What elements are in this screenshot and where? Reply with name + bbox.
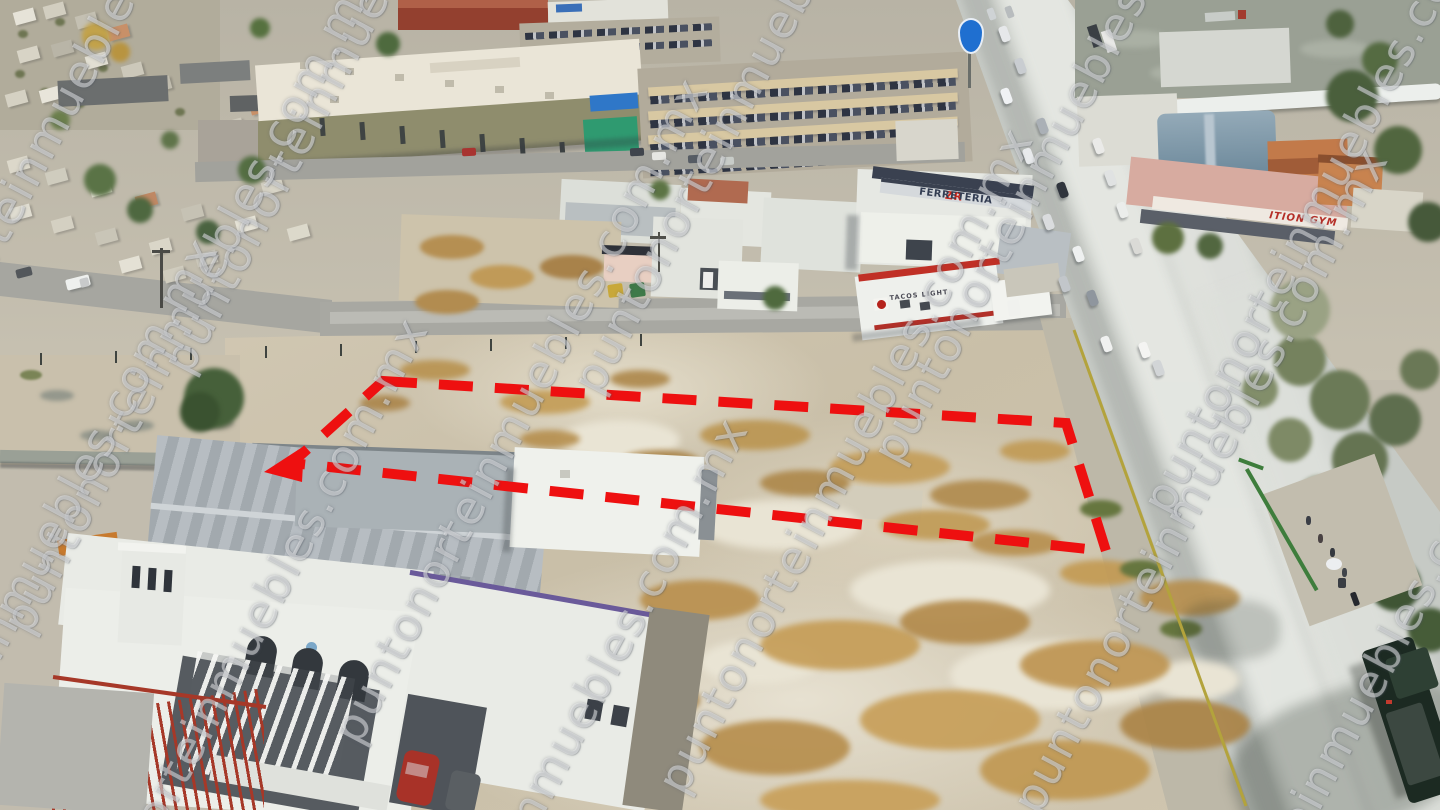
tree [84, 164, 116, 196]
roof-vent [495, 86, 504, 93]
fence-post [340, 344, 342, 356]
tree [763, 286, 787, 310]
road-sign-pole [968, 52, 971, 88]
window-dark [610, 705, 629, 727]
van-white [1007, 299, 1021, 317]
fence-post [490, 339, 492, 351]
weeds [1120, 560, 1162, 578]
rubble-pile [1300, 40, 1370, 58]
brush-patch [970, 530, 1060, 556]
building-shadow [845, 215, 859, 270]
tree [1362, 42, 1398, 78]
fence-post [115, 351, 117, 363]
brush-patch [1020, 640, 1170, 690]
car [720, 157, 734, 166]
tree [250, 18, 270, 38]
ferreteria-door [906, 240, 933, 261]
tree [376, 32, 400, 56]
tree [1152, 222, 1184, 254]
white-flat-building [510, 447, 705, 557]
brush-patch [930, 480, 1030, 510]
tree [1326, 70, 1378, 122]
steel-frame-roof [398, 0, 548, 8]
tower-window [147, 568, 156, 590]
fence-post [565, 337, 567, 349]
shrub [175, 108, 185, 116]
brush-patch [700, 420, 810, 450]
brush-patch [470, 265, 534, 289]
roof-vent [345, 68, 354, 75]
tower-window [131, 566, 140, 588]
house-tower [118, 546, 187, 645]
tree [1270, 280, 1330, 340]
concrete-yard [295, 448, 518, 534]
pole-crossarm [650, 236, 666, 239]
brush-patch [360, 395, 410, 411]
sand-patch [700, 500, 860, 550]
van-green [629, 282, 646, 298]
car [462, 148, 476, 157]
tree [1268, 418, 1312, 462]
umbrella-white [1326, 558, 1342, 570]
shed [895, 119, 958, 161]
tree [1408, 202, 1440, 242]
tree-shadow [1180, 600, 1280, 660]
brush-patch [610, 370, 670, 388]
tree [161, 131, 179, 149]
fence-post [40, 353, 42, 365]
tree [127, 197, 153, 223]
tower-window [163, 570, 172, 592]
fence-post [190, 348, 192, 360]
roof-vent [445, 80, 454, 87]
white-building [1159, 28, 1291, 88]
tree [1326, 10, 1354, 38]
warehouse-ridge [1204, 114, 1216, 172]
tree [50, 110, 70, 130]
brush-patch [1120, 700, 1250, 750]
rubble-pile [120, 420, 154, 431]
utility-pole [160, 248, 163, 308]
brush-patch [880, 510, 990, 540]
tree [1310, 370, 1370, 430]
brush-patch [415, 290, 479, 314]
car [688, 155, 702, 164]
tree [650, 180, 670, 200]
roof-vent [330, 96, 339, 103]
brush-patch [400, 360, 470, 380]
brush-patch [420, 235, 484, 259]
brush-patch [700, 720, 850, 775]
rubble-pile [80, 430, 114, 441]
tree [1369, 394, 1421, 446]
brush-patch [520, 430, 580, 448]
pedestrian [1330, 548, 1335, 557]
rubble-pile [40, 390, 74, 401]
tree [82, 22, 110, 50]
shrub [18, 30, 28, 38]
shrub [15, 70, 25, 78]
red-roof-building [687, 178, 748, 203]
tree [238, 156, 266, 184]
jeep-yellow [607, 283, 624, 298]
roof-vent [300, 62, 309, 69]
weeds [20, 370, 42, 380]
brush-patch [540, 255, 604, 279]
tree [110, 42, 130, 62]
pedestrian [1306, 516, 1311, 525]
pedestrian [1318, 534, 1323, 543]
pole-crossarm [152, 250, 170, 253]
weeds [1080, 500, 1122, 518]
tacos-window [920, 301, 931, 310]
car [652, 152, 666, 161]
pedestrian [1342, 568, 1347, 577]
fence-post [415, 341, 417, 353]
fence-post [265, 346, 267, 358]
brush-patch [500, 390, 590, 414]
office-building [717, 261, 799, 312]
aerial-photo: ZR FERRETERIA TACOS LIGHT ITION GYM punt… [0, 0, 1440, 810]
brush-patch [900, 600, 1030, 644]
brush-patch [1000, 440, 1070, 462]
truck-taillight [1386, 700, 1392, 704]
car [630, 148, 644, 157]
tree [180, 392, 220, 432]
ac-unit [560, 470, 570, 478]
roof-vent [545, 92, 554, 99]
tree [1374, 126, 1422, 174]
roof-vent [395, 74, 404, 81]
tree [1242, 372, 1278, 408]
brush-patch [980, 740, 1150, 800]
pavement [0, 683, 154, 810]
stroller [1338, 578, 1346, 588]
warehouse-dark [180, 60, 251, 84]
brush-patch [760, 470, 850, 496]
window-dark [584, 699, 603, 721]
truck-cab-red [1238, 10, 1246, 19]
tree [1197, 233, 1223, 259]
fence-post [640, 334, 642, 346]
supermarket-sign [590, 92, 639, 111]
shrub [55, 18, 65, 26]
brush-patch [760, 620, 920, 670]
blue-sign [556, 4, 582, 13]
tree [1400, 350, 1440, 390]
tree [196, 220, 220, 244]
truck-in-bay [703, 272, 714, 288]
brush-patch [860, 690, 1040, 750]
